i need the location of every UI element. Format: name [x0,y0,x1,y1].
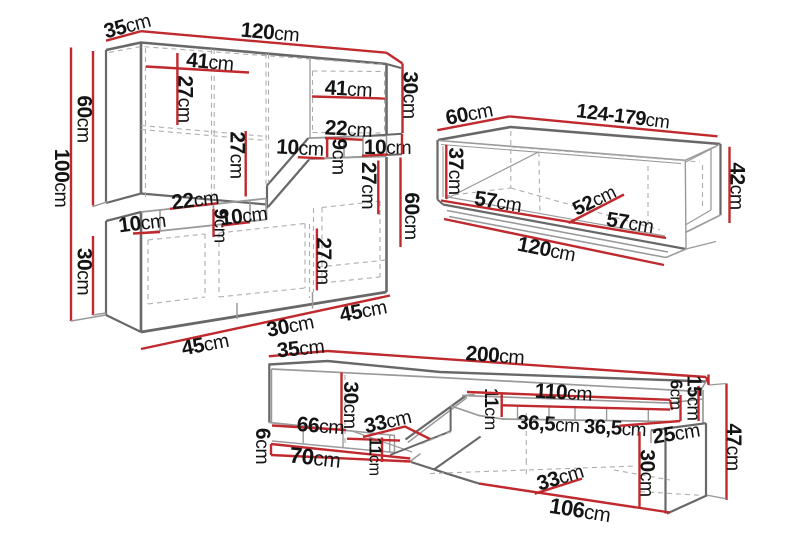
svg-text:42cm: 42cm [725,162,748,209]
svg-text:110cm: 110cm [534,380,593,406]
svg-text:100cm: 100cm [50,149,73,208]
svg-text:30cm: 30cm [635,449,658,496]
svg-text:27cm: 27cm [173,75,196,122]
svg-text:200cm: 200cm [465,342,525,369]
svg-text:9cm: 9cm [327,138,350,174]
svg-text:27cm: 27cm [312,237,335,284]
svg-text:41cm: 41cm [324,76,373,101]
svg-text:60cm: 60cm [400,192,423,239]
svg-text:11cm: 11cm [480,388,501,430]
svg-text:35cm: 35cm [276,335,326,363]
svg-text:60cm: 60cm [72,95,95,142]
svg-text:27cm: 27cm [357,162,380,209]
svg-text:15cm: 15cm [683,375,705,420]
svg-text:47cm: 47cm [722,423,745,470]
svg-text:36,5cm: 36,5cm [583,415,646,441]
svg-text:30cm: 30cm [398,71,421,118]
svg-text:27cm: 27cm [225,131,248,178]
svg-text:11cm: 11cm [366,437,386,475]
svg-text:37cm: 37cm [444,147,467,194]
svg-text:30cm: 30cm [72,248,95,295]
svg-text:6cm: 6cm [251,428,274,464]
svg-text:36,5cm: 36,5cm [517,411,580,437]
svg-text:10cm: 10cm [276,135,325,160]
svg-text:66cm: 66cm [296,413,345,439]
svg-text:10cm: 10cm [364,136,411,159]
svg-text:41cm: 41cm [185,49,234,76]
